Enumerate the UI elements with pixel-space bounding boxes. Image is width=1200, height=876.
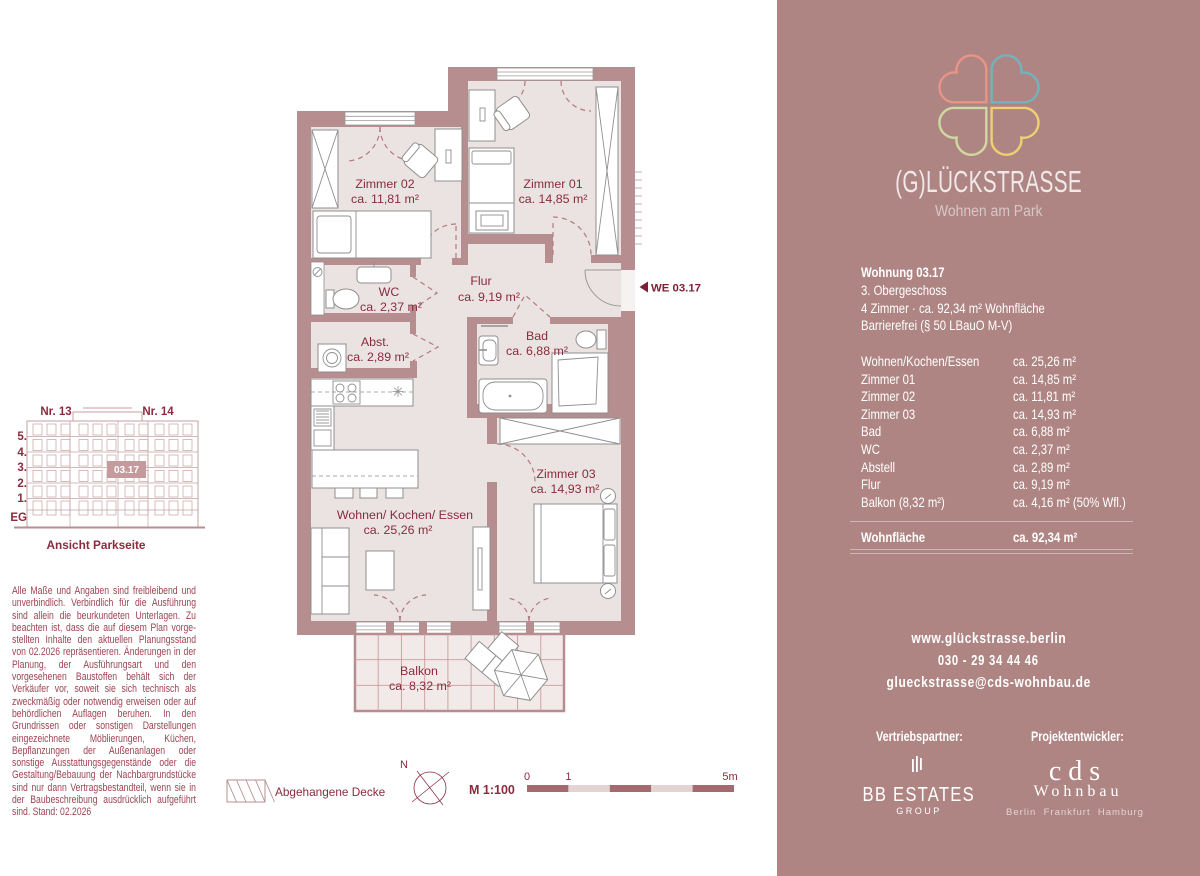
- svg-text:ca. 11,81 m²: ca. 11,81 m²: [351, 192, 419, 206]
- svg-text:ca. 2,89 m²: ca. 2,89 m²: [347, 350, 409, 364]
- svg-text:Wohnen/ Kochen/ Essen: Wohnen/ Kochen/ Essen: [337, 508, 473, 522]
- svg-text:N: N: [400, 759, 408, 771]
- svg-text:Zimmer 03: Zimmer 03: [536, 467, 595, 481]
- svg-text:Nr. 14: Nr. 14: [142, 406, 174, 418]
- svg-text:ca. 25,26 m²: ca. 25,26 m²: [364, 523, 433, 537]
- svg-text:Ansicht Parkseite: Ansicht Parkseite: [46, 538, 145, 552]
- svg-text:Abst.: Abst.: [361, 335, 389, 349]
- svg-text:5m: 5m: [722, 771, 737, 783]
- svg-text:EG: EG: [10, 512, 27, 524]
- svg-text:0: 0: [524, 771, 530, 783]
- svg-text:1.: 1.: [17, 493, 27, 505]
- svg-text:Balkon: Balkon: [400, 664, 438, 678]
- svg-text:Zimmer 01: Zimmer 01: [523, 177, 582, 191]
- svg-text:Zimmer 02: Zimmer 02: [355, 177, 414, 191]
- svg-text:2.: 2.: [17, 478, 27, 490]
- svg-text:Abgehangene Decke: Abgehangene Decke: [275, 785, 386, 799]
- svg-text:3.: 3.: [17, 462, 27, 474]
- svg-text:WE 03.17: WE 03.17: [651, 283, 701, 295]
- svg-text:ca. 9,19 m²: ca. 9,19 m²: [458, 290, 520, 304]
- svg-text:5.: 5.: [17, 431, 27, 443]
- svg-text:Nr. 13: Nr. 13: [40, 406, 71, 418]
- svg-text:✳: ✳: [392, 384, 405, 401]
- svg-text:03.17: 03.17: [114, 465, 139, 476]
- svg-text:M 1:100: M 1:100: [469, 783, 515, 797]
- svg-text:4.: 4.: [17, 447, 27, 459]
- svg-text:Flur: Flur: [470, 274, 491, 288]
- svg-text:1: 1: [565, 771, 571, 783]
- svg-text:WC: WC: [379, 285, 400, 299]
- svg-text:ca. 2,37 m²: ca. 2,37 m²: [360, 300, 422, 314]
- svg-text:Bad: Bad: [526, 329, 548, 343]
- svg-text:ca. 14,85 m²: ca. 14,85 m²: [519, 192, 588, 206]
- svg-text:ca. 14,93 m²: ca. 14,93 m²: [531, 482, 600, 496]
- svg-text:ca. 6,88 m²: ca. 6,88 m²: [506, 344, 568, 358]
- svg-text:ca. 8,32 m²: ca. 8,32 m²: [389, 679, 451, 693]
